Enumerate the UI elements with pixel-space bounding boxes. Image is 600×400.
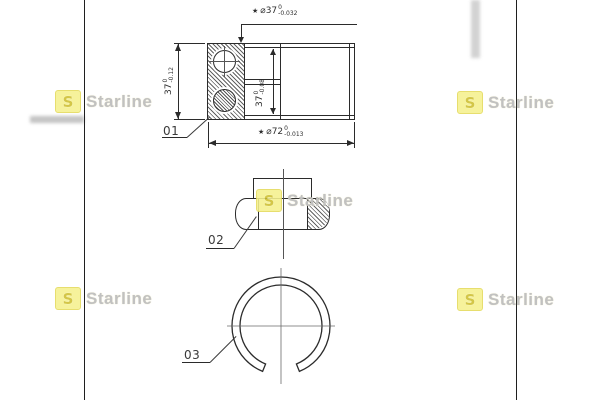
catalog-drawing-page: ★ ⌀37 0 -0.032 ★ ⌀72 0 -0.013 37 0 -0.12 — [0, 0, 600, 400]
ball-centerline-v — [224, 46, 225, 77]
logo-letter: S — [63, 290, 74, 308]
starline-logo-icon: S — [457, 288, 483, 311]
dimension-value: ⌀37 — [260, 6, 277, 16]
starline-logo-icon: S — [55, 287, 81, 310]
logo-letter: S — [465, 291, 476, 309]
snap-ring-drawing — [221, 266, 341, 386]
dimension-value: 37 — [164, 84, 174, 95]
label-underline — [182, 362, 210, 363]
tolerance-lower: -0.08 — [260, 79, 266, 95]
watermark-brand-text: Starline — [287, 191, 353, 211]
starline-logo-icon: S — [256, 189, 282, 212]
dimension-value: 37 — [255, 96, 265, 107]
starline-logo-icon: S — [457, 91, 483, 114]
arrowhead-down-icon — [238, 37, 244, 43]
cylinder-top-inner-line — [245, 47, 354, 48]
watermark-brand-text: Starline — [86, 92, 152, 112]
part-label-snap-ring: 03 — [184, 348, 200, 362]
arrowhead-down-icon — [175, 112, 181, 119]
starline-watermark: S Starline — [55, 287, 152, 310]
starline-watermark: S Starline — [457, 91, 554, 114]
dimension-line — [209, 143, 354, 144]
dimension-line — [273, 49, 274, 114]
nut-centerline — [283, 169, 284, 259]
tolerance-lower: -0.12 — [169, 67, 175, 83]
logo-letter: S — [465, 94, 476, 112]
tolerance: 0 -0.032 — [278, 5, 297, 18]
cylinder-bottom-inner-line — [245, 115, 354, 116]
scan-smudge — [471, 0, 480, 58]
dimension-line — [178, 44, 179, 119]
tolerance-lower: -0.013 — [284, 132, 303, 138]
scan-smudge — [30, 116, 84, 123]
arrowhead-right-icon — [347, 140, 354, 146]
starline-watermark: S Starline — [55, 90, 152, 113]
bearing-ball-bottom-sectioned — [213, 89, 236, 112]
tolerance: 0 -0.013 — [284, 126, 303, 139]
dimension-extension-line — [354, 122, 355, 148]
logo-letter: S — [63, 93, 74, 111]
tolerance: 0 -0.12 — [163, 67, 176, 83]
label-underline — [206, 248, 234, 249]
part-label-nut: 02 — [208, 233, 224, 247]
watermark-brand-text: Starline — [86, 289, 152, 309]
arrowhead-down-icon — [270, 108, 276, 114]
arrowhead-up-icon — [175, 44, 181, 51]
watermark-brand-text: Starline — [488, 93, 554, 113]
dimension-leader-line — [241, 24, 357, 25]
dimension-outer-diameter: ★ ⌀72 0 -0.013 — [258, 127, 304, 140]
leader-line — [187, 117, 210, 138]
starline-logo-icon: S — [55, 90, 81, 113]
table-border-right — [516, 0, 517, 400]
arrowhead-up-icon — [270, 49, 276, 55]
table-border-left — [84, 0, 85, 400]
tolerance: 0 -0.08 — [254, 79, 267, 95]
watermark-brand-text: Starline — [488, 290, 554, 310]
dimension-overall-width: 37 0 -0.12 — [164, 61, 176, 101]
dimension-extension-line — [174, 119, 205, 120]
dimension-leader-drop — [241, 24, 242, 38]
dimension-inner-width: 37 0 -0.08 — [255, 73, 267, 113]
dimension-value: ⌀72 — [266, 127, 283, 137]
tolerance-lower: -0.032 — [278, 11, 297, 17]
star-icon: ★ — [258, 128, 264, 136]
arrowhead-left-icon — [209, 140, 216, 146]
star-icon: ★ — [252, 7, 258, 15]
cylinder-end-line — [349, 44, 350, 119]
starline-watermark: S Starline — [457, 288, 554, 311]
cylinder-divider-line — [280, 44, 281, 119]
starline-watermark: S Starline — [256, 189, 353, 212]
logo-letter: S — [264, 192, 275, 210]
dimension-bore-diameter: ★ ⌀37 0 -0.032 — [252, 6, 298, 19]
part-label-bearing: 01 — [163, 124, 179, 138]
